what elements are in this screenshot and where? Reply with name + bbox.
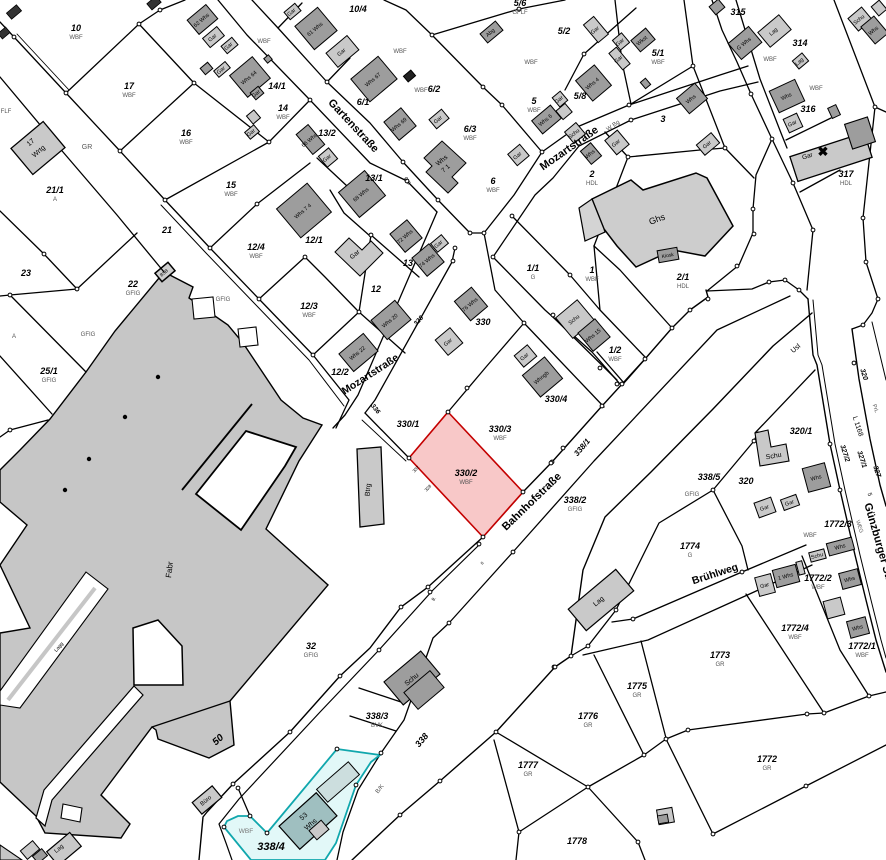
svg-text:320: 320 bbox=[738, 476, 753, 486]
svg-text:GFIG: GFIG bbox=[81, 332, 96, 338]
svg-text:1772/4: 1772/4 bbox=[781, 623, 809, 633]
svg-text:WBF: WBF bbox=[493, 436, 507, 442]
svg-text:13: 13 bbox=[403, 258, 413, 268]
svg-text:WBF: WBF bbox=[524, 60, 538, 66]
svg-text:WBF: WBF bbox=[224, 192, 238, 198]
svg-text:1772/3: 1772/3 bbox=[824, 519, 852, 529]
svg-text:WBF: WBF bbox=[763, 57, 777, 63]
svg-text:22: 22 bbox=[127, 279, 138, 289]
svg-text:WBF: WBF bbox=[276, 115, 290, 121]
svg-text:WBF: WBF bbox=[122, 93, 136, 99]
svg-text:WBF: WBF bbox=[809, 86, 823, 92]
svg-text:1777: 1777 bbox=[518, 760, 539, 770]
svg-text:330/1: 330/1 bbox=[397, 419, 420, 429]
svg-text:HDL: HDL bbox=[840, 181, 853, 187]
svg-text:WBF: WBF bbox=[811, 585, 825, 591]
svg-text:1772: 1772 bbox=[757, 754, 777, 764]
svg-text:WBF: WBF bbox=[608, 357, 622, 363]
svg-text:FLF: FLF bbox=[1, 109, 12, 115]
svg-text:1772/1: 1772/1 bbox=[848, 641, 876, 651]
svg-text:G: G bbox=[688, 553, 693, 559]
svg-text:G: G bbox=[531, 275, 536, 281]
svg-text:1/1: 1/1 bbox=[527, 263, 540, 273]
svg-text:WBF: WBF bbox=[69, 35, 83, 41]
svg-text:GFLF: GFLF bbox=[512, 10, 528, 16]
svg-text:WBF: WBF bbox=[651, 60, 665, 66]
svg-text:25/1: 25/1 bbox=[39, 366, 58, 376]
svg-text:1: 1 bbox=[589, 265, 594, 275]
svg-text:WBF: WBF bbox=[459, 480, 473, 486]
svg-text:1774: 1774 bbox=[680, 541, 700, 551]
svg-text:12/3: 12/3 bbox=[300, 301, 318, 311]
svg-text:WBF: WBF bbox=[249, 254, 263, 260]
svg-text:14/1: 14/1 bbox=[268, 81, 286, 91]
svg-text:10/4: 10/4 bbox=[349, 4, 367, 14]
svg-text:330: 330 bbox=[475, 317, 490, 327]
svg-text:15: 15 bbox=[226, 180, 237, 190]
svg-text:6/1: 6/1 bbox=[357, 97, 370, 107]
svg-text:GR: GR bbox=[82, 144, 93, 151]
svg-text:338/5: 338/5 bbox=[698, 472, 722, 482]
svg-text:1778: 1778 bbox=[567, 836, 587, 846]
svg-text:GFIG: GFIG bbox=[685, 492, 700, 498]
svg-text:GFIG: GFIG bbox=[42, 378, 57, 384]
svg-text:GFIG: GFIG bbox=[216, 297, 231, 303]
svg-text:317: 317 bbox=[838, 169, 854, 179]
svg-text:GR: GR bbox=[584, 723, 594, 729]
svg-text:GR: GR bbox=[633, 693, 643, 699]
svg-text:5/1: 5/1 bbox=[652, 48, 665, 58]
svg-text:32: 32 bbox=[306, 641, 316, 651]
svg-text:WBF: WBF bbox=[239, 828, 253, 835]
svg-text:1/2: 1/2 bbox=[609, 345, 622, 355]
svg-text:WBF: WBF bbox=[302, 313, 316, 319]
svg-text:21: 21 bbox=[161, 225, 172, 235]
svg-text:314: 314 bbox=[792, 38, 807, 48]
svg-text:14: 14 bbox=[278, 103, 288, 113]
svg-text:WBF: WBF bbox=[486, 188, 500, 194]
svg-text:HDL: HDL bbox=[586, 181, 599, 187]
svg-text:338/4: 338/4 bbox=[257, 841, 285, 853]
svg-text:5/2: 5/2 bbox=[558, 26, 571, 36]
svg-text:WBF: WBF bbox=[855, 653, 869, 659]
svg-text:21/1: 21/1 bbox=[45, 185, 64, 195]
svg-text:WBF: WBF bbox=[179, 140, 193, 146]
svg-text:338/2: 338/2 bbox=[564, 495, 587, 505]
svg-text:2/1: 2/1 bbox=[676, 272, 690, 282]
svg-text:✖: ✖ bbox=[818, 144, 829, 159]
svg-text:GFIG: GFIG bbox=[568, 507, 583, 513]
svg-text:338/3: 338/3 bbox=[366, 711, 389, 721]
svg-text:5/6: 5/6 bbox=[514, 0, 528, 8]
svg-text:16: 16 bbox=[181, 128, 192, 138]
svg-text:1775: 1775 bbox=[627, 681, 648, 691]
svg-text:13/1: 13/1 bbox=[365, 173, 383, 183]
svg-text:6/2: 6/2 bbox=[428, 84, 441, 94]
svg-text:GR: GR bbox=[763, 766, 773, 772]
svg-text:GFIG: GFIG bbox=[304, 653, 319, 659]
svg-text:WBF: WBF bbox=[257, 39, 271, 45]
svg-text:315: 315 bbox=[730, 7, 746, 17]
svg-text:12/4: 12/4 bbox=[247, 242, 265, 252]
svg-text:17: 17 bbox=[124, 81, 135, 91]
svg-text:A: A bbox=[53, 197, 57, 203]
svg-text:330/3: 330/3 bbox=[489, 424, 512, 434]
svg-text:Btrg: Btrg bbox=[364, 483, 372, 497]
svg-text:5/8: 5/8 bbox=[574, 91, 587, 101]
svg-text:12: 12 bbox=[371, 284, 381, 294]
svg-text:WBF: WBF bbox=[393, 49, 407, 55]
svg-text:13/2: 13/2 bbox=[318, 128, 336, 138]
svg-text:6/3: 6/3 bbox=[464, 124, 477, 134]
svg-text:1773: 1773 bbox=[710, 650, 730, 660]
svg-text:330/2: 330/2 bbox=[455, 468, 478, 478]
svg-text:A: A bbox=[12, 334, 16, 340]
svg-text:3: 3 bbox=[660, 114, 665, 124]
svg-text:320/1: 320/1 bbox=[790, 426, 813, 436]
svg-text:WBF: WBF bbox=[463, 136, 477, 142]
svg-text:WBF: WBF bbox=[414, 88, 428, 94]
svg-text:WBF: WBF bbox=[803, 533, 817, 539]
svg-text:330/4: 330/4 bbox=[545, 394, 568, 404]
svg-text:2: 2 bbox=[588, 169, 594, 179]
svg-text:BVK: BVK bbox=[371, 723, 383, 729]
svg-text:10: 10 bbox=[71, 23, 81, 33]
svg-text:1772/2: 1772/2 bbox=[804, 573, 832, 583]
svg-text:316: 316 bbox=[800, 104, 816, 114]
svg-text:12/1: 12/1 bbox=[305, 235, 323, 245]
svg-text:WBF: WBF bbox=[585, 277, 599, 283]
svg-text:HDL: HDL bbox=[677, 284, 690, 290]
svg-text:GR: GR bbox=[524, 772, 534, 778]
svg-text:WBF: WBF bbox=[527, 108, 541, 114]
svg-text:WBF: WBF bbox=[788, 635, 802, 641]
svg-text:12/2: 12/2 bbox=[331, 367, 349, 377]
svg-text:GFIG: GFIG bbox=[126, 291, 141, 297]
svg-text:GR: GR bbox=[716, 662, 726, 668]
svg-text:23: 23 bbox=[20, 268, 31, 278]
svg-text:1776: 1776 bbox=[578, 711, 599, 721]
